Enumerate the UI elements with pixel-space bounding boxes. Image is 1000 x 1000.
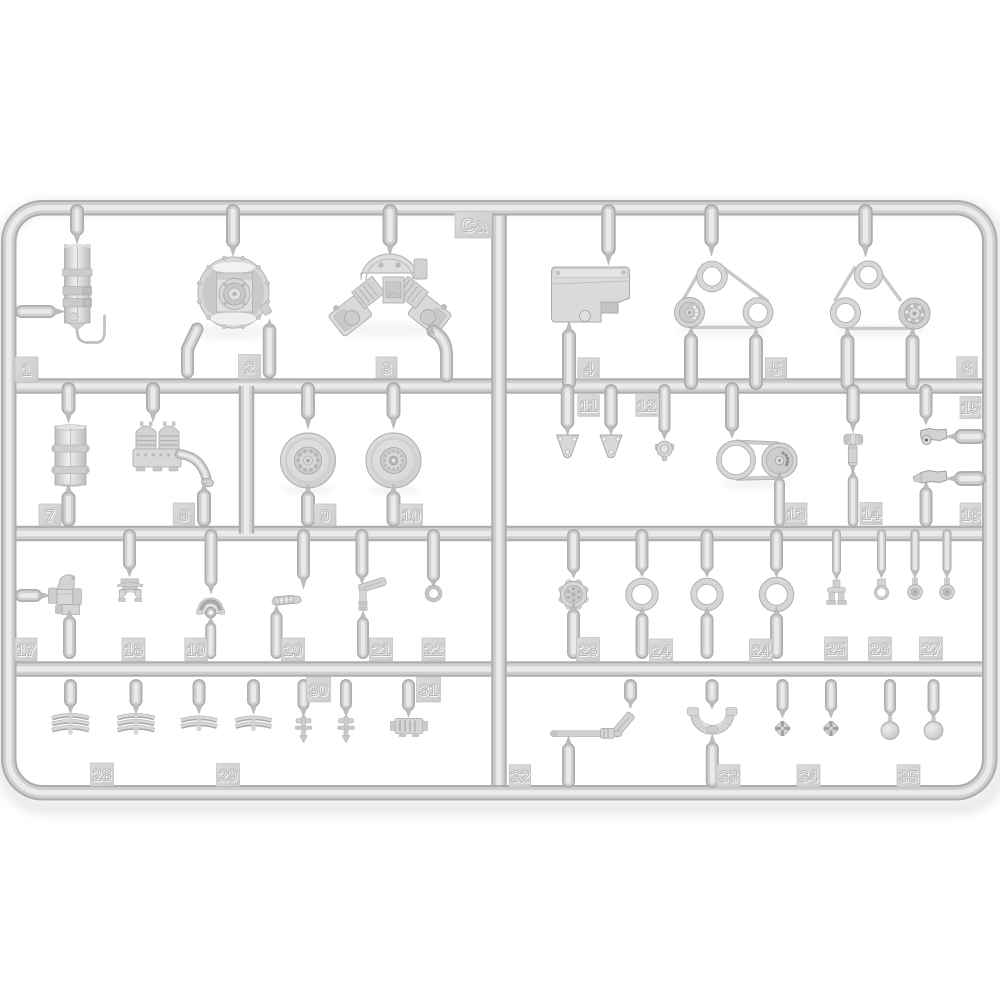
- svg-text:25: 25: [827, 640, 846, 659]
- svg-text:34: 34: [799, 767, 818, 786]
- svg-text:24: 24: [652, 642, 671, 661]
- svg-text:29: 29: [219, 766, 238, 785]
- svg-text:11: 11: [580, 397, 598, 416]
- svg-text:19: 19: [187, 641, 206, 660]
- svg-text:12: 12: [637, 397, 656, 416]
- svg-text:20: 20: [284, 641, 303, 660]
- svg-text:23: 23: [579, 641, 598, 660]
- svg-text:31: 31: [419, 681, 438, 700]
- svg-text:28: 28: [93, 766, 112, 785]
- svg-text:22: 22: [424, 641, 443, 660]
- svg-text:7: 7: [45, 506, 54, 525]
- svg-text:24: 24: [752, 642, 771, 661]
- svg-text:3: 3: [382, 359, 391, 378]
- svg-text:9: 9: [320, 506, 329, 525]
- svg-text:6: 6: [962, 358, 971, 377]
- svg-text:21: 21: [372, 641, 391, 660]
- svg-text:26: 26: [871, 640, 890, 659]
- svg-text:8: 8: [179, 506, 188, 525]
- svg-text:32: 32: [511, 767, 530, 786]
- svg-text:5: 5: [771, 360, 780, 379]
- svg-text:17: 17: [17, 641, 36, 660]
- svg-text:33: 33: [719, 767, 738, 786]
- svg-text:4: 4: [584, 360, 594, 379]
- svg-text:15: 15: [961, 399, 980, 418]
- svg-text:13: 13: [787, 505, 806, 524]
- svg-text:35: 35: [899, 767, 918, 786]
- svg-text:27: 27: [922, 640, 941, 659]
- svg-text:18: 18: [124, 641, 143, 660]
- svg-text:1: 1: [22, 361, 31, 380]
- svg-text:Ca: Ca: [461, 215, 487, 237]
- svg-text:30: 30: [309, 681, 328, 700]
- svg-text:14: 14: [862, 505, 881, 524]
- svg-text:2: 2: [245, 358, 254, 377]
- svg-text:16: 16: [961, 506, 980, 525]
- svg-text:10: 10: [402, 506, 421, 525]
